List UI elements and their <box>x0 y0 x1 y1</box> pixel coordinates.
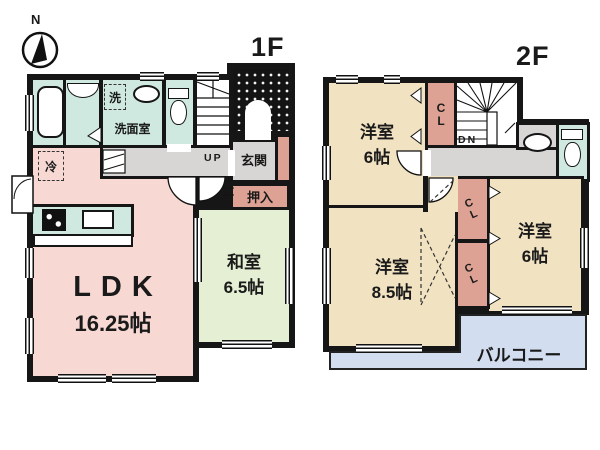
floor2-title: 2F <box>516 41 550 72</box>
window-ldk-bottom-1 <box>58 374 106 383</box>
window-washitsu-right <box>285 248 294 304</box>
window-bedroom-nw-left <box>322 146 331 180</box>
genkan-label: 玄関 <box>241 152 267 171</box>
kitchen-island-counter <box>33 234 133 247</box>
sliding-door-ldk-washitsu <box>193 218 202 282</box>
bedroom-nw: 洋室 6帖 <box>326 80 428 212</box>
washitsu-size-label: 6.5帖 <box>224 276 265 301</box>
window-bedroom-nw-top-1 <box>336 75 358 84</box>
balcony-door-bedroom-se <box>502 306 572 315</box>
bathtub <box>37 86 64 138</box>
stove <box>42 209 66 231</box>
toilet-tank-1f <box>168 88 189 99</box>
ldk-size-label: 16.25帖 <box>33 308 193 340</box>
washing-machine-label: 洗 <box>109 89 121 106</box>
window-stairs-1f <box>197 72 219 81</box>
window-washroom <box>140 72 164 81</box>
washing-machine-box: 洗 <box>104 84 126 110</box>
window-washitsu-bottom <box>222 340 272 349</box>
entrance-door-arc <box>245 100 271 140</box>
closet-top: CL <box>425 80 457 150</box>
bedroom-se: 洋室 6帖 <box>486 176 584 314</box>
bedroom-nw-label: 洋室 <box>360 121 394 146</box>
kitchen-sink <box>82 210 114 229</box>
window-bedroom-sw-left <box>322 248 331 304</box>
window-bedroom-se-right <box>580 228 589 268</box>
washitsu-label: 和室 <box>227 251 261 276</box>
oshiire-label: 押入 <box>247 189 273 208</box>
stairs-down-label: DN <box>458 134 477 146</box>
bedroom-sw-label: 洋室 <box>375 248 409 281</box>
bedroom-entry-nook <box>423 176 458 212</box>
bedroom-se-label: 洋室 <box>518 220 552 245</box>
window-bedroom-sw-bottom <box>356 344 422 353</box>
bedroom-sw-size-label: 8.5帖 <box>372 281 413 306</box>
shoe-cabinet <box>275 134 292 183</box>
washbasin-2f <box>523 133 552 152</box>
genkan-room: 玄関 <box>230 139 278 183</box>
closet-mid-1-label: CL <box>460 195 482 222</box>
refrigerator-box: 冷 <box>38 151 64 181</box>
window-ldk-left-1 <box>25 248 34 278</box>
toilet-bowl-2f <box>564 142 581 167</box>
floor1-title: 1F <box>251 32 285 63</box>
washbasin-1f <box>133 85 160 103</box>
bedroom-se-size-label: 6帖 <box>522 245 548 270</box>
closet-top-label: CL <box>435 102 448 128</box>
refrigerator-label: 冷 <box>45 158 57 175</box>
opening-genkan-hall <box>228 150 235 176</box>
stairs-up-label: UP <box>204 152 223 164</box>
window-bath <box>25 95 34 131</box>
balcony-label: バルコニー <box>452 341 586 366</box>
window-ldk-bottom-2 <box>112 374 156 383</box>
opening-bedroom-nw-door <box>423 150 431 176</box>
bedroom-sw: 洋室 8.5帖 <box>326 205 458 349</box>
opening-toilet-door-1f <box>167 144 191 152</box>
ldk-label: LDK <box>33 266 193 308</box>
staircase-1f <box>194 77 232 147</box>
toilet-tank-2f <box>561 129 583 140</box>
washitsu-room: 和室 6.5帖 <box>196 207 292 345</box>
compass-north-label: N <box>31 12 40 27</box>
washroom-label: 洗面室 <box>103 121 162 138</box>
window-bedroom-nw-top-2 <box>384 75 400 84</box>
window-ldk-left-2 <box>25 318 34 354</box>
toilet-bowl-1f <box>170 100 187 125</box>
closet-mid-2-label: CL <box>460 261 482 288</box>
floor-plan-page: { "compass": { "north_label": "N" }, "fl… <box>0 0 600 450</box>
bedroom-nw-size-label: 6帖 <box>364 146 390 171</box>
